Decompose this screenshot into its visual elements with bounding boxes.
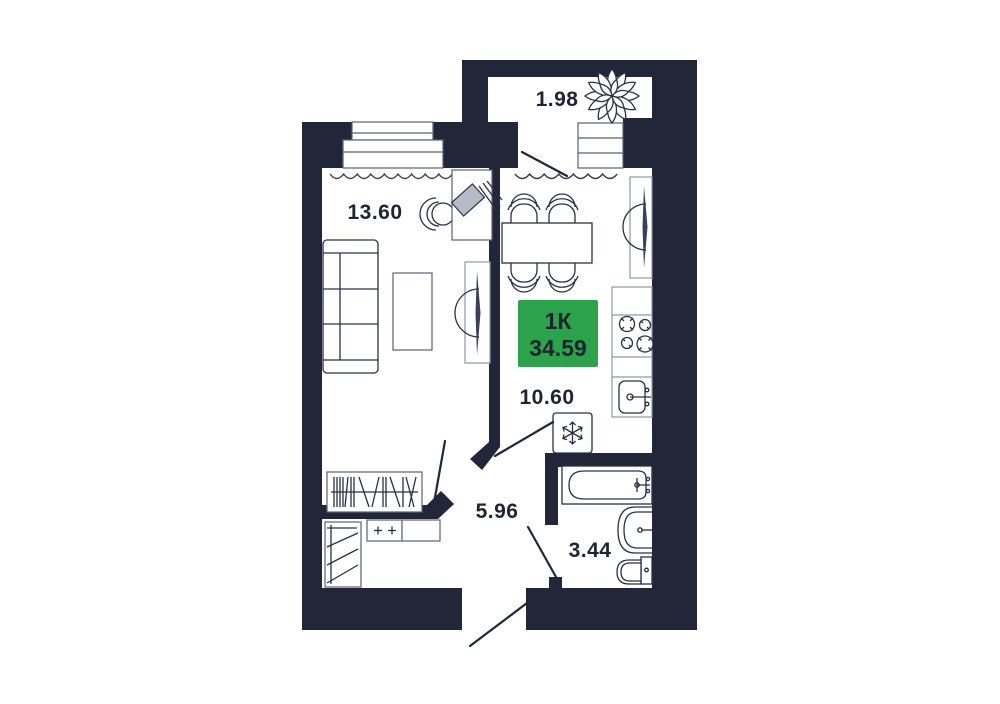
area-label-hallway: 5.96	[476, 500, 519, 523]
hall-cabinet	[402, 520, 440, 541]
dining-table	[502, 223, 592, 263]
floorplan-canvas: 1К 34.59 1.98 13.60 10.60 5.96 3.44	[0, 0, 1000, 704]
tv-icon-kitchen	[623, 177, 652, 278]
wall-balcony-left	[462, 60, 488, 122]
wall-bay-right-block	[433, 122, 518, 168]
plant-icon	[585, 69, 639, 123]
badge-rooms-label: 1К	[545, 308, 573, 334]
wall-jamb-bath-door	[549, 577, 562, 595]
area-label-bathroom: 3.44	[569, 539, 612, 562]
badge-total-area: 34.59	[529, 335, 587, 361]
hall-closet	[325, 522, 361, 587]
room-hallway	[325, 520, 440, 587]
tv-icon-living	[455, 262, 490, 363]
hall-cabinet-marked	[367, 520, 402, 541]
sofa	[323, 240, 378, 373]
coffee-table	[393, 273, 432, 350]
wall-jamb-living-door	[426, 491, 454, 519]
facade-bay-ledge	[343, 122, 443, 168]
wardrobe	[327, 472, 422, 512]
wall-bath-left	[545, 453, 558, 525]
wall-balcony-lower-right	[623, 118, 652, 168]
apartment-badge: 1К 34.59	[518, 300, 598, 367]
door-swing-balcony	[522, 152, 567, 176]
desk-chair	[420, 198, 454, 230]
window-living-room	[330, 174, 452, 179]
door-swing-kitchen	[495, 422, 553, 456]
area-label-living-room: 13.60	[347, 201, 402, 224]
balcony-bench	[578, 123, 623, 168]
door-swing-entrance	[470, 603, 527, 646]
wall-right	[652, 60, 697, 630]
door-swing-bathroom	[528, 527, 556, 577]
wall-bath-top	[545, 453, 652, 467]
area-label-balcony: 1.98	[536, 88, 579, 111]
floorplan-svg: 1К 34.59 1.98 13.60 10.60 5.96 3.44	[0, 0, 1000, 704]
toilet	[617, 557, 652, 584]
bathtub	[562, 466, 652, 504]
room-bathroom	[562, 466, 652, 584]
area-label-kitchen: 10.60	[519, 386, 574, 409]
fridge	[553, 413, 592, 453]
washbasin	[618, 507, 652, 553]
wall-bottom-left	[302, 588, 462, 630]
wall-left	[302, 122, 322, 630]
